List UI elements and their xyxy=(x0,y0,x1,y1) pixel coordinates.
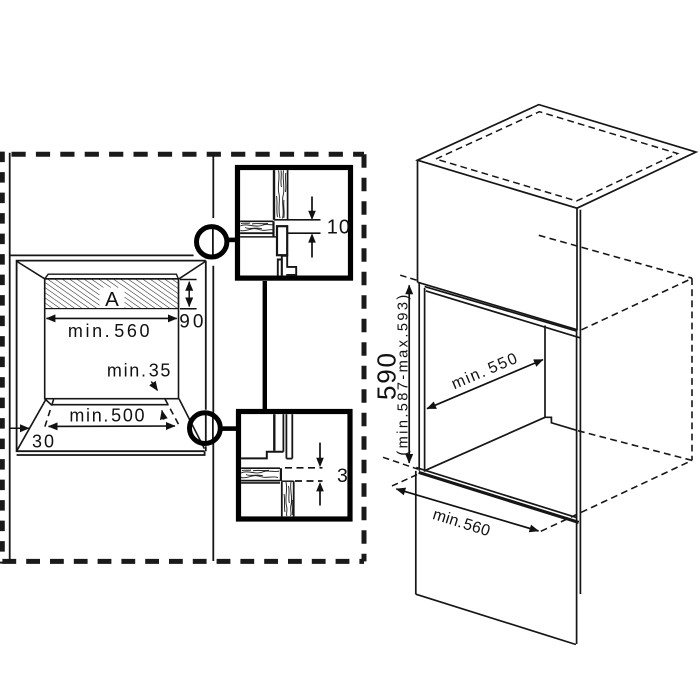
svg-text:min.35: min.35 xyxy=(107,361,172,381)
svg-text:3: 3 xyxy=(337,465,348,487)
svg-text:(min.587-max.593): (min.587-max.593) xyxy=(396,292,412,455)
svg-text:30: 30 xyxy=(32,432,56,452)
svg-text:min.500: min.500 xyxy=(69,406,146,426)
svg-text:90: 90 xyxy=(179,312,206,333)
svg-text:10: 10 xyxy=(327,217,351,239)
svg-text:A: A xyxy=(105,288,119,311)
svg-text:min.560: min.560 xyxy=(68,321,152,341)
